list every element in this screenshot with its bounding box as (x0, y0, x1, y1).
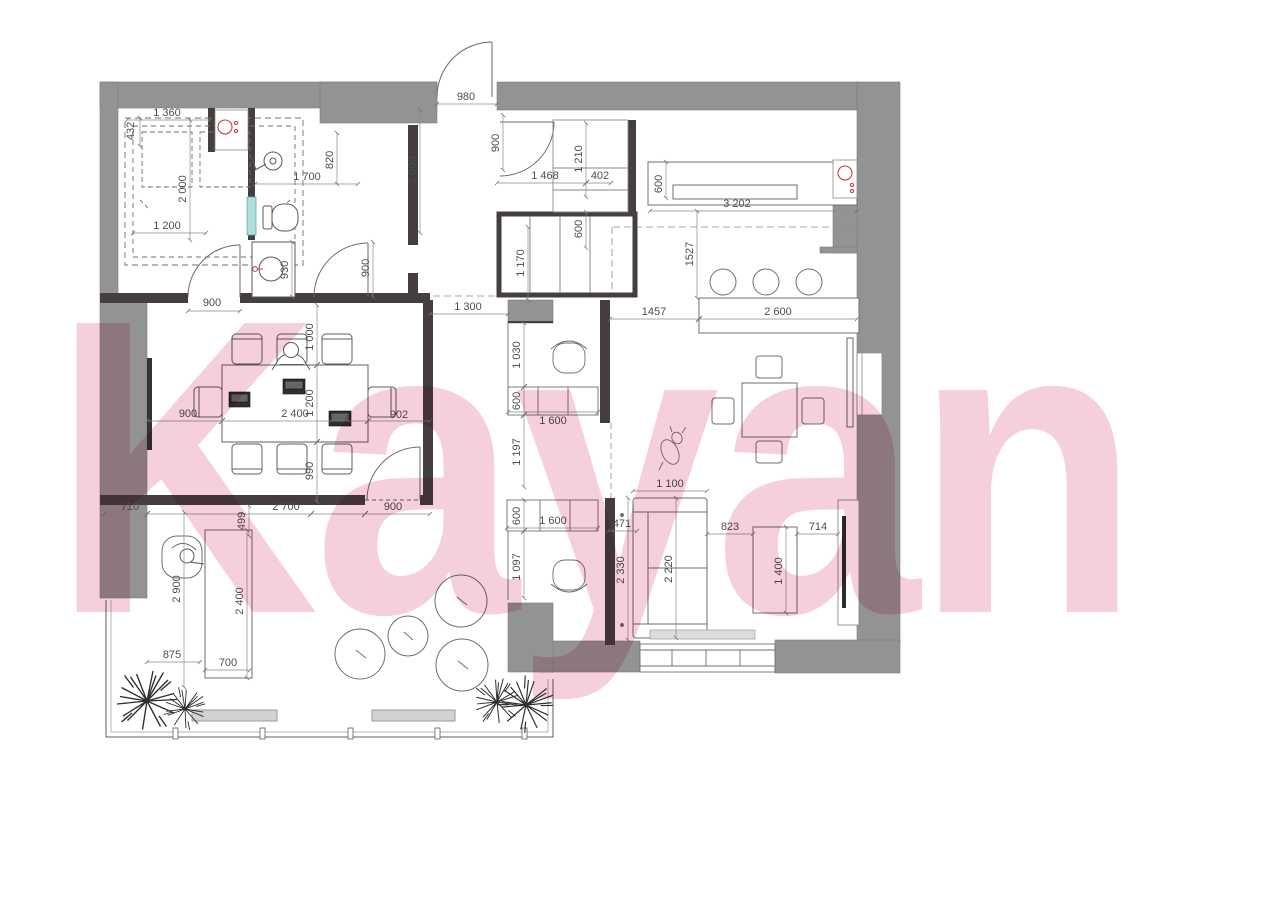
dim-label: 499 (236, 512, 248, 530)
bench-icon (192, 710, 277, 721)
dim-label: 823 (721, 521, 739, 533)
wall-bath-right (408, 125, 418, 245)
dim-label: 1 030 (511, 341, 523, 369)
dining-chair (756, 441, 782, 463)
dim-label: 1 200 (153, 220, 181, 232)
meeting-room (147, 334, 396, 474)
bar-stool-icon (710, 269, 736, 295)
dim-label: 714 (809, 521, 827, 533)
plant-icon (117, 671, 177, 730)
dim-label: 900 (360, 259, 372, 277)
tv-icon (842, 516, 846, 608)
floor-plan: 1 360 1 200 1 700 980 1 468 402 3 202 1 … (0, 0, 1280, 904)
dim-label: 600 (573, 220, 585, 238)
dim-label: 1 000 (304, 323, 316, 351)
dim-label: 2 400 (234, 587, 246, 615)
wall-corner-block (508, 603, 553, 672)
wall-left-lower (100, 300, 147, 598)
wall-meeting-bottom-b (420, 495, 433, 505)
shower-glass (247, 197, 256, 235)
meeting-door-swing-icon (365, 447, 420, 500)
bar-stool-icon (796, 269, 822, 295)
dim-label: 2 000 (177, 175, 189, 203)
kitchen (648, 160, 859, 333)
living-window (640, 644, 775, 672)
dog-figure (657, 426, 686, 470)
entry-door-swing-icon (437, 42, 492, 97)
toilet-icon (263, 204, 298, 231)
dim-label: 902 (390, 409, 408, 421)
bar-stool-icon (753, 269, 779, 295)
dim-label: 700 (219, 657, 237, 669)
wall-step (820, 247, 857, 253)
dim-label: 3 202 (723, 198, 751, 210)
wall-meeting-bottom-a (100, 495, 365, 505)
dining-table (742, 383, 797, 437)
dim-label: 1527 (684, 242, 696, 266)
dim-label: 1 210 (573, 145, 585, 173)
dim-label: 900 (490, 134, 502, 152)
dim-label: 1457 (642, 306, 666, 318)
drawing-area: 1 360 1 200 1 700 980 1 468 402 3 202 1 … (0, 0, 1280, 904)
dim-label: 1 170 (515, 249, 527, 277)
plant-icon (470, 675, 524, 728)
wall-meeting-right (423, 300, 433, 500)
dim-label: 402 (591, 170, 609, 182)
dim-label: 1 200 (304, 389, 316, 417)
pouf-icon (335, 575, 488, 691)
wall-top-thick (320, 82, 437, 123)
wall-niche (857, 353, 882, 415)
desk-chair-person (162, 536, 204, 578)
dim-label: 980 (457, 91, 475, 103)
dim-label: 1 600 (539, 515, 567, 527)
dim-label: 900 (203, 297, 221, 309)
dining-chair (802, 398, 824, 424)
wall-laundry-bottom-a (100, 293, 188, 303)
wall-closet-right-upper (628, 120, 636, 214)
dim-label: 1 300 (454, 301, 482, 313)
wall-top-right (497, 82, 857, 110)
dim-label: 710 (121, 501, 139, 513)
dim-label: 2 220 (663, 555, 675, 583)
wall-bottom-mid (540, 641, 640, 672)
wall-left-upper (100, 82, 118, 300)
bench-icon (372, 710, 455, 721)
dim-label: 900 (179, 408, 197, 420)
dim-label: 2 000 (407, 156, 419, 184)
dim-label: 600 (653, 175, 665, 193)
shower-icon (252, 152, 282, 170)
dim-label: 1 600 (539, 415, 567, 427)
dim-label: 600 (511, 507, 523, 525)
dim-label: 900 (384, 501, 402, 513)
dim-label: 1 097 (511, 553, 523, 581)
dim-label: 1 197 (511, 438, 523, 466)
wall-stub (508, 300, 553, 323)
dim-label: 820 (324, 151, 336, 169)
wall-bottom-right (775, 640, 900, 673)
dining-chair (756, 356, 782, 378)
dim-label: 2 600 (764, 306, 792, 318)
dim-label: 600 (511, 392, 523, 410)
tv-icon (147, 358, 152, 450)
dim-label: 990 (304, 462, 316, 480)
laundry-door-swing-icon (188, 245, 240, 297)
dim-label: 1 700 (293, 171, 321, 183)
dim-label: 2 900 (171, 575, 183, 603)
dining-area (712, 356, 824, 463)
tv-recess (838, 500, 859, 625)
wall-panel (847, 338, 853, 427)
dim-label: 930 (279, 261, 291, 279)
plant-icon (159, 682, 212, 734)
console-icon (650, 630, 755, 639)
armchair-icon (551, 560, 587, 592)
closet-door-swing-icon (500, 122, 554, 176)
armchair-icon (551, 341, 587, 373)
closet-upper (553, 120, 628, 212)
person-figure (180, 549, 194, 563)
dim-label: 2 700 (272, 501, 300, 513)
dim-label: 471 (613, 518, 631, 530)
wall-workspace (600, 300, 610, 423)
dim-label: 1 468 (531, 170, 559, 182)
dim-label: 1 360 (153, 107, 181, 119)
dim-label: 1 400 (773, 557, 785, 585)
dim-label: 432 (125, 122, 137, 140)
dim-label: 2 330 (615, 556, 627, 584)
dim-label: 1 100 (656, 478, 684, 490)
wall-nook-left (208, 108, 215, 152)
dining-chair (712, 398, 734, 424)
dim-label: 875 (163, 649, 181, 661)
